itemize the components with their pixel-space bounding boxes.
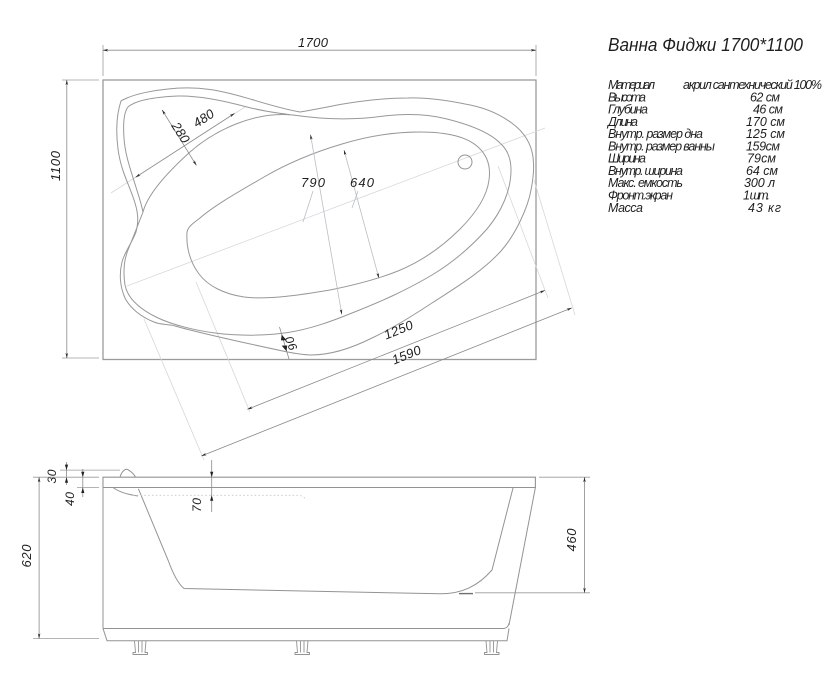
svg-text:Ванна Фиджи 1700*1100: Ванна Фиджи 1700*1100 <box>608 35 803 55</box>
svg-text:70: 70 <box>190 498 204 512</box>
svg-text:790: 790 <box>301 175 326 190</box>
svg-text:90: 90 <box>282 334 300 353</box>
svg-text:40: 40 <box>63 492 77 506</box>
svg-text:Масса: Масса <box>608 201 643 215</box>
svg-text:43 кг: 43 кг <box>748 201 781 215</box>
svg-text:30: 30 <box>45 469 59 483</box>
svg-text:1700: 1700 <box>298 35 329 50</box>
svg-text:460: 460 <box>564 528 579 552</box>
svg-text:1590: 1590 <box>390 342 424 367</box>
svg-text:1100: 1100 <box>48 150 63 181</box>
svg-text:640: 640 <box>350 175 375 190</box>
svg-text:1250: 1250 <box>382 317 416 342</box>
svg-text:620: 620 <box>19 544 34 568</box>
